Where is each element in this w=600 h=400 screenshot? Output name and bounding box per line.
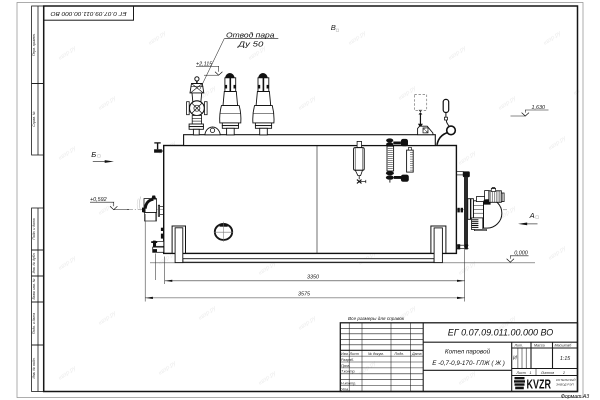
svg-text:Все размеры для справок: Все размеры для справок bbox=[348, 316, 405, 321]
svg-text:2: 2 bbox=[562, 371, 565, 375]
svg-text:Ду 50: Ду 50 bbox=[237, 39, 264, 48]
svg-text:3350: 3350 bbox=[307, 275, 319, 281]
svg-text:Подп. и дата: Подп. и дата bbox=[32, 313, 36, 334]
svg-text:Пров.: Пров. bbox=[341, 364, 350, 368]
svg-text:И: И bbox=[513, 356, 517, 362]
svg-text:Б: Б bbox=[91, 150, 96, 159]
svg-text:Формат А3: Формат А3 bbox=[561, 394, 589, 400]
svg-text:А: А bbox=[529, 211, 535, 220]
svg-text:Подп.: Подп. bbox=[395, 352, 405, 356]
svg-text:Масштаб: Масштаб bbox=[555, 344, 573, 348]
svg-text:ЕГ 0.07.09.011.00.000 ВО: ЕГ 0.07.09.011.00.000 ВО bbox=[448, 327, 554, 337]
svg-text:Разраб.: Разраб. bbox=[341, 358, 354, 362]
svg-text:Лист: Лист bbox=[516, 371, 526, 375]
svg-text:Инв. № дубл.: Инв. № дубл. bbox=[32, 253, 36, 274]
svg-text:Листов: Листов bbox=[540, 371, 554, 375]
svg-text:КОТЕЛЬНЫЙ: КОТЕЛЬНЫЙ bbox=[556, 378, 576, 382]
svg-text:Взам. инв. №: Взам. инв. № bbox=[32, 278, 36, 299]
svg-text:Отвод пара: Отвод пара bbox=[226, 30, 275, 39]
svg-text:Перв. примен.: Перв. примен. bbox=[32, 33, 36, 56]
svg-text:Лит.: Лит. bbox=[514, 344, 523, 348]
svg-text:Изм. Лист: Изм. Лист bbox=[341, 352, 359, 356]
svg-text:№ докум.: № докум. bbox=[368, 352, 384, 356]
svg-text:В: В bbox=[331, 23, 336, 32]
svg-text:0,000: 0,000 bbox=[514, 250, 528, 256]
svg-text:Е -0,7-0,9-170- ГЛЖ ( Ж ): Е -0,7-0,9-170- ГЛЖ ( Ж ) bbox=[432, 360, 505, 367]
svg-text:Справ. №: Справ. № bbox=[32, 111, 36, 127]
svg-text:+0,592: +0,592 bbox=[90, 197, 107, 203]
svg-text:ЕГ 0.07.09.011.00.000 ВО: ЕГ 0.07.09.011.00.000 ВО bbox=[50, 10, 126, 16]
svg-text:Н.контр.: Н.контр. bbox=[341, 382, 356, 386]
svg-text:Инв. № подл.: Инв. № подл. bbox=[32, 357, 36, 378]
svg-text:Т.контр.: Т.контр. bbox=[341, 370, 356, 374]
svg-text:Утв.: Утв. bbox=[341, 387, 349, 391]
svg-text:KVZR: KVZR bbox=[527, 377, 552, 392]
svg-text:ЗАВОД РЭП: ЗАВОД РЭП bbox=[556, 383, 575, 387]
svg-text:1:15: 1:15 bbox=[560, 356, 570, 362]
svg-text:Масса: Масса bbox=[534, 344, 545, 348]
svg-text:1: 1 bbox=[530, 371, 532, 375]
svg-text:Котел паровой: Котел паровой bbox=[445, 348, 491, 356]
svg-text:Дата: Дата bbox=[411, 352, 421, 356]
svg-text:Подп. и дата: Подп. и дата bbox=[32, 218, 36, 239]
svg-text:3575: 3575 bbox=[298, 292, 311, 298]
